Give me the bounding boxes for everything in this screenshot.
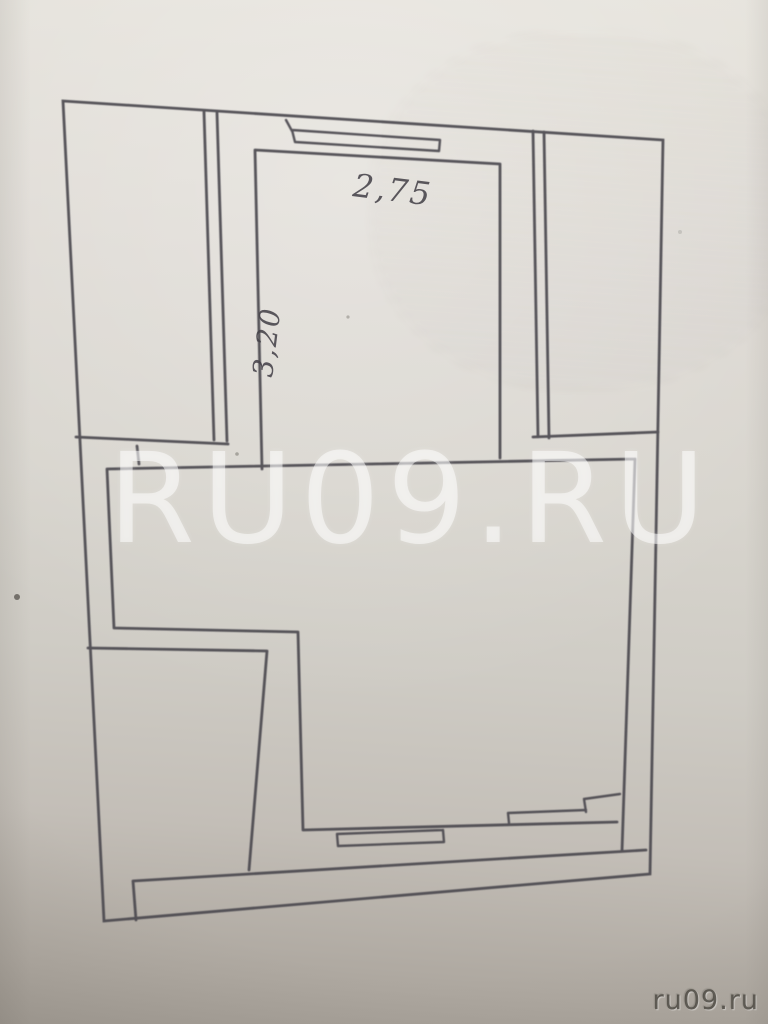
photo-vignette xyxy=(0,0,768,1024)
scanned-floor-plan-photo: 2,75 3,20 RU09.RU ru09.ru xyxy=(0,0,768,1024)
